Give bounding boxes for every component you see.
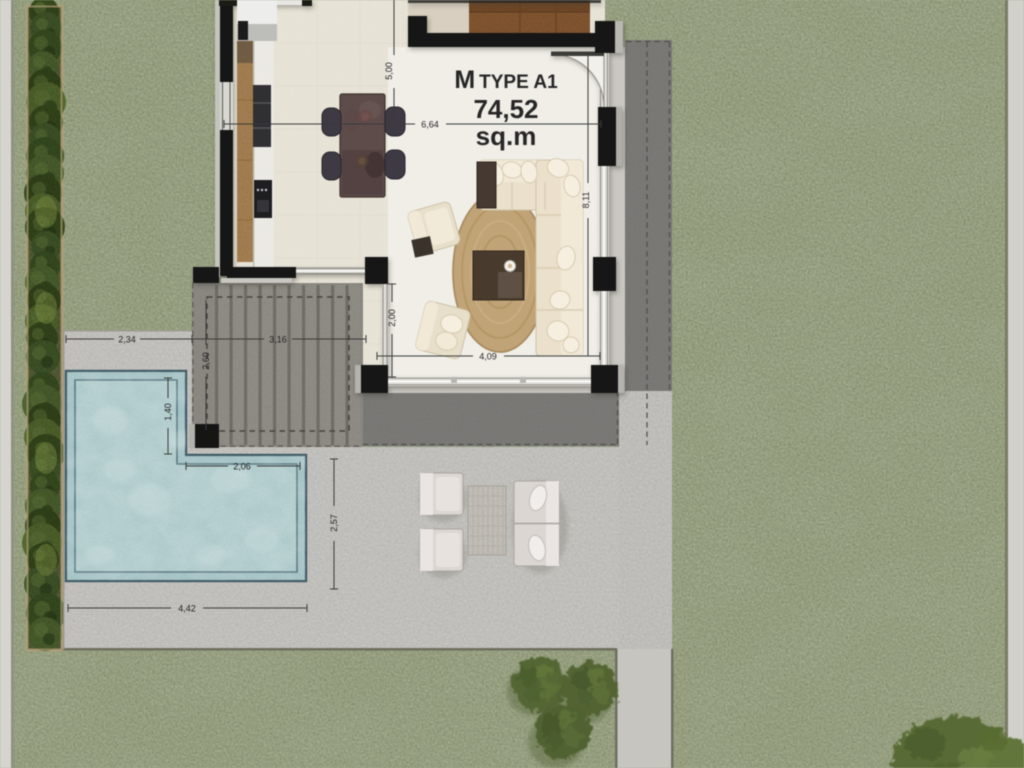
svg-text:2,57: 2,57: [329, 514, 339, 532]
svg-text:2,00: 2,00: [387, 309, 397, 327]
svg-text:sq.m: sq.m: [476, 121, 537, 151]
svg-text:2,34: 2,34: [118, 335, 136, 345]
svg-text:2,60: 2,60: [201, 352, 211, 370]
svg-text:1,40: 1,40: [163, 403, 173, 421]
svg-text:3,16: 3,16: [269, 335, 287, 345]
svg-text:5,00: 5,00: [384, 62, 394, 80]
svg-text:6,64: 6,64: [421, 120, 439, 130]
svg-text:4,09: 4,09: [479, 352, 497, 362]
svg-text:2,06: 2,06: [233, 462, 251, 472]
svg-text:74,52: 74,52: [473, 94, 538, 124]
svg-text:8,11: 8,11: [581, 192, 591, 209]
svg-text:4,42: 4,42: [178, 604, 196, 614]
